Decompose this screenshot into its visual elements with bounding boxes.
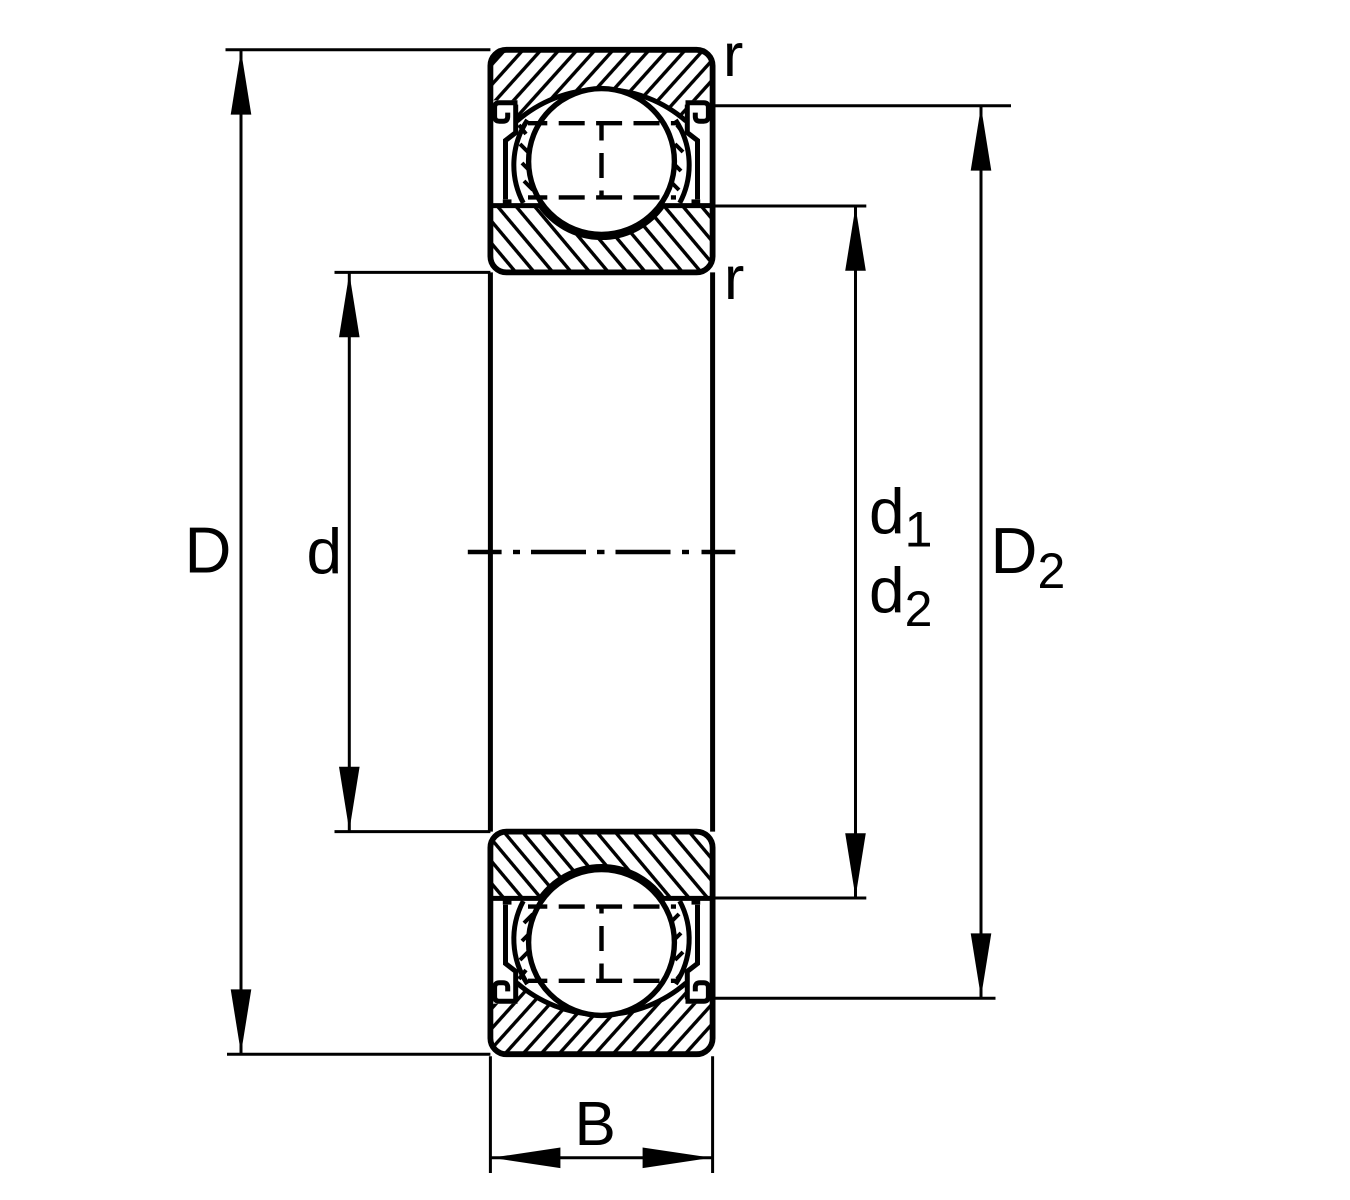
svg-text:r: r (723, 21, 743, 89)
svg-text:D: D (185, 514, 232, 587)
svg-text:d: d (307, 516, 343, 588)
svg-text:r: r (724, 244, 744, 312)
svg-text:B: B (575, 1090, 616, 1159)
